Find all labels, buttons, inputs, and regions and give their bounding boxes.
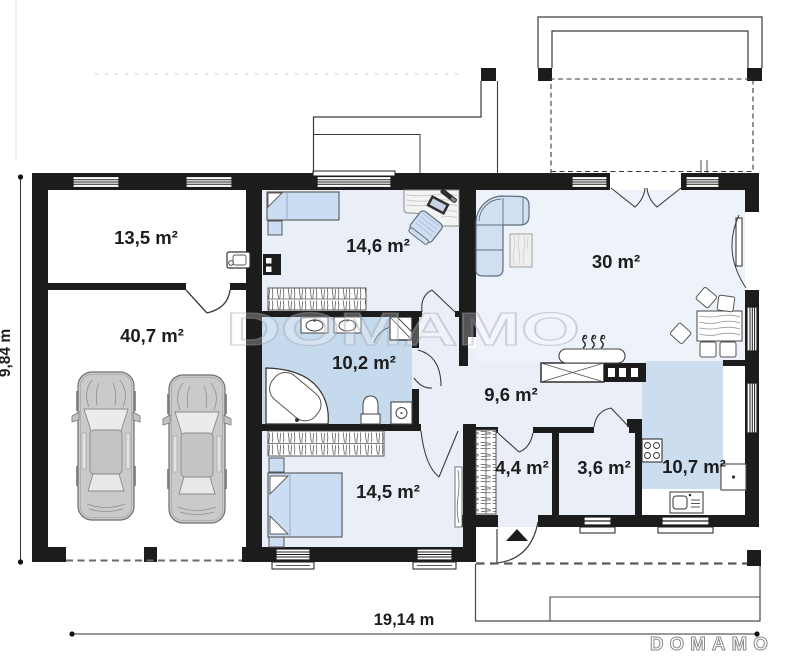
svg-text:3,6 m²: 3,6 m² (577, 457, 630, 478)
svg-text:40,7 m²: 40,7 m² (120, 325, 184, 346)
svg-text:14,6 m²: 14,6 m² (346, 235, 410, 256)
svg-text:9,6 m²: 9,6 m² (484, 384, 537, 405)
svg-text:10,2 m²: 10,2 m² (332, 352, 396, 373)
svg-text:9,84 m: 9,84 m (0, 329, 14, 377)
svg-text:30 m²: 30 m² (592, 251, 640, 272)
svg-text:13,5 m²: 13,5 m² (114, 227, 178, 248)
svg-text:10,7 m²: 10,7 m² (662, 456, 726, 477)
svg-text:19,14 m: 19,14 m (374, 611, 435, 629)
svg-text:DOMAMO: DOMAMO (650, 634, 774, 654)
svg-text:DOMAMO: DOMAMO (226, 303, 580, 355)
svg-text:4,4 m²: 4,4 m² (495, 457, 548, 478)
svg-text:14,5 m²: 14,5 m² (356, 481, 420, 502)
